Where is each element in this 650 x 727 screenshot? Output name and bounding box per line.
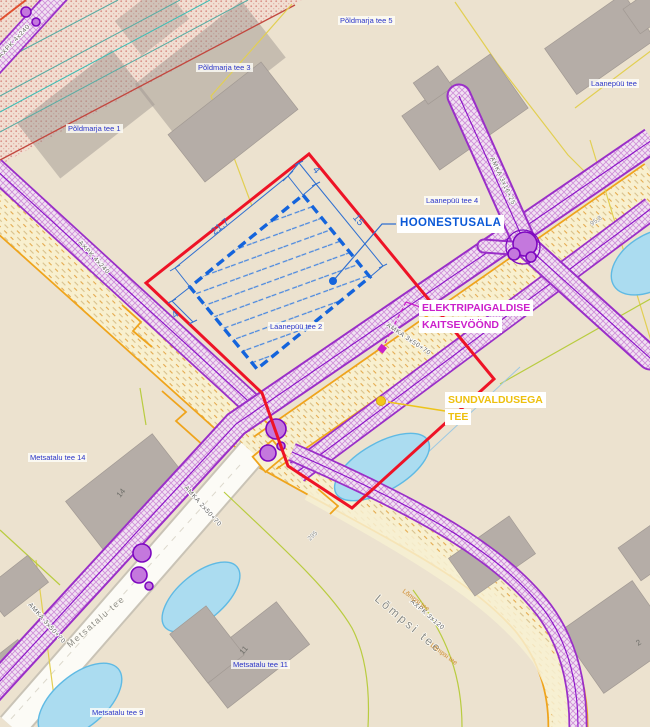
sundvaldus-marker	[377, 397, 386, 406]
map-drawing: 21,7 4 15 4 AMKA 3x16+25 AMKA 3x50+70 AM…	[0, 0, 650, 727]
sundvaldus-line1: SUNDVALDUSEGA	[445, 392, 546, 408]
lot-label-metsatalu-14: Metsatalu tee 14	[28, 453, 87, 462]
kaitsevoond-label: ELEKTRIPAIGALDISE KAITSEVÖÖND	[419, 300, 533, 333]
lot-label-laanepuu-2: Laanepüü tee 2	[268, 322, 324, 331]
sundvaldus-label: SUNDVALDUSEGA TEE	[445, 392, 546, 425]
lot-label-laanepuu: Laanepüü tee	[589, 79, 639, 88]
map-canvas[interactable]: 21,7 4 15 4 AMKA 3x16+25 AMKA 3x50+70 AM…	[0, 0, 650, 727]
lot-label-laanepuu-4: Laanepüü tee 4	[424, 196, 480, 205]
sundvaldus-line2: TEE	[445, 409, 471, 425]
kaitsevoond-line2: KAITSEVÖÖND	[419, 317, 502, 333]
lot-label-metsatalu-11: Metsatalu tee 11	[231, 660, 290, 669]
hoonestusala-text: HOONESTUSALA	[397, 215, 504, 233]
lot-label-poldmarja-5: Põldmarja tee 5	[338, 16, 395, 25]
hoonestusala-label: HOONESTUSALA	[397, 215, 504, 233]
lot-label-poldmarja-1: Põldmarja tee 1	[66, 124, 123, 133]
lot-label-metsatalu-9: Metsatalu tee 9	[90, 708, 145, 717]
kaitsevoond-line1: ELEKTRIPAIGALDISE	[419, 300, 533, 316]
lot-label-poldmarja-3: Põldmarja tee 3	[196, 63, 253, 72]
hoonestusala-marker	[329, 277, 337, 285]
